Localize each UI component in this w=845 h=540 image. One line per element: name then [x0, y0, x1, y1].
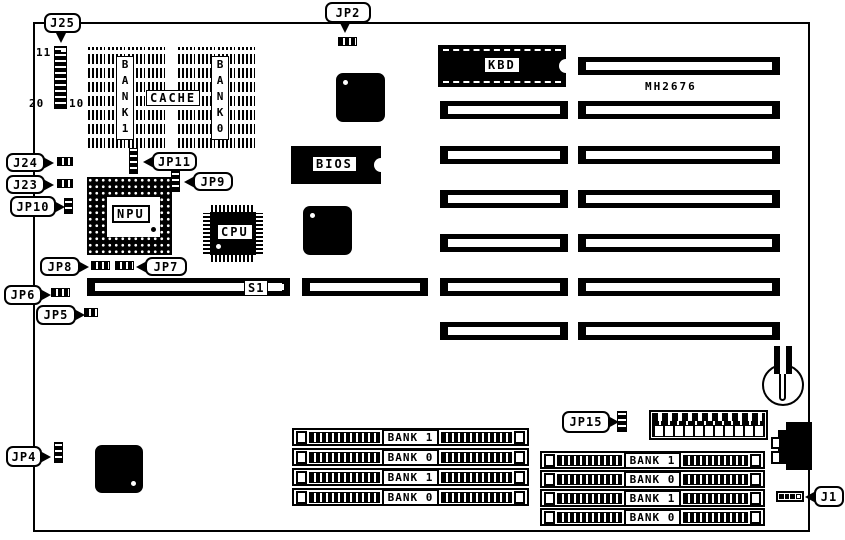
plcc-chip-top-pin1-dot	[343, 80, 348, 85]
cpu-text: CPU	[221, 225, 249, 239]
expansion-slot	[578, 322, 780, 340]
simm-clip	[296, 471, 307, 484]
jumper-label-j23: J23	[6, 175, 45, 194]
simm-chips	[557, 455, 622, 466]
j1-pin	[779, 494, 784, 499]
s1-text: S1	[248, 281, 264, 295]
expansion-slot	[440, 146, 568, 164]
simm-clip	[750, 511, 761, 524]
jumper-label-jp9: JP9	[193, 172, 233, 191]
npu-pin1-dot	[151, 227, 156, 232]
simm-bank-label: BANK 0	[624, 471, 682, 488]
simm-chips	[309, 432, 380, 443]
simm-clip	[544, 473, 555, 486]
cpu-pins-left	[203, 213, 210, 254]
kbd-label: KBD	[484, 57, 520, 73]
simm-socket: BANK 0	[540, 508, 765, 526]
cpu-label: CPU	[217, 224, 253, 240]
cache-bank1-text: BANK1	[119, 58, 132, 138]
jumper-label-jp2-text: JP2	[336, 6, 361, 20]
simm-chips	[557, 493, 622, 504]
jumper-j23	[57, 179, 73, 188]
kbd-text: KBD	[488, 58, 516, 72]
simm-clip	[296, 451, 307, 464]
jumper-label-jp15-text: JP15	[570, 415, 603, 429]
npu-label: NPU	[112, 205, 150, 223]
jumper-label-j25-text: J25	[50, 16, 75, 30]
cache-bank0-label: BANK0	[211, 56, 229, 140]
simm-socket: BANK 1	[292, 428, 529, 446]
plcc-chip-bottom-pin1-dot	[131, 481, 136, 486]
j1-pin	[790, 494, 795, 499]
expansion-slot	[578, 278, 780, 296]
jumper-label-j24-text: J24	[13, 156, 38, 170]
simm-chips	[441, 432, 512, 443]
j1-pin-open	[796, 494, 801, 499]
simm-bank-label: BANK 1	[624, 490, 682, 507]
simm-chips	[309, 492, 380, 503]
simm-bank-label: BANK 1	[382, 469, 440, 486]
jumper-label-jp10: JP10	[10, 196, 56, 217]
jumper-label-j23-text: J23	[13, 178, 38, 192]
jumper-label-jp4-text: JP4	[12, 450, 37, 464]
jumper-label-jp2: JP2	[325, 2, 371, 23]
pin-number-20: 20	[29, 97, 44, 110]
keyboard-din-pin-socket	[771, 437, 781, 449]
power-connector-pins	[652, 413, 765, 421]
plcc-chip-middle	[303, 206, 352, 255]
cache-bank1-label: BANK1	[116, 56, 134, 140]
jumper-label-jp7: JP7	[145, 257, 187, 276]
simm-clip	[514, 491, 525, 504]
jumper-jp11	[129, 148, 138, 174]
simm-clip	[750, 492, 761, 505]
simm-chips	[683, 493, 748, 504]
simm-chips	[683, 512, 748, 523]
keyboard-din-pin-socket	[771, 451, 781, 464]
motherboard-diagram: J25 11 20 10 BANK1 BANK0 CACHE JP2 KBD M…	[0, 0, 845, 540]
cpu-pins-bottom	[211, 255, 255, 262]
jumper-jp4	[54, 442, 63, 463]
battery-terminal-stem	[779, 374, 786, 401]
expansion-slot	[440, 234, 568, 252]
simm-clip	[544, 454, 555, 467]
expansion-slot	[578, 146, 780, 164]
cpu-body: CPU	[210, 212, 256, 255]
expansion-slot	[440, 101, 568, 119]
jumper-j24	[57, 157, 73, 166]
jumper-jp9	[171, 171, 180, 192]
cpu-pins-right	[256, 213, 263, 254]
expansion-slot	[578, 234, 780, 252]
simm-clip	[750, 454, 761, 467]
s1-end-mark	[274, 284, 284, 290]
cache-bank0-text: BANK0	[214, 58, 227, 138]
cache-text: CACHE	[150, 91, 196, 105]
simm-clip	[296, 491, 307, 504]
simm-chips	[309, 472, 380, 483]
simm-chips	[557, 474, 622, 485]
simm-socket: BANK 0	[292, 488, 529, 506]
simm-socket: BANK 0	[292, 448, 529, 466]
jumper-label-jp8-text: JP8	[48, 260, 73, 274]
bios-text: BIOS	[316, 157, 353, 171]
jumper-label-jp6: JP6	[4, 285, 42, 305]
jumper-label-jp8: JP8	[40, 257, 80, 276]
simm-socket: BANK 1	[540, 489, 765, 507]
simm-socket: BANK 1	[292, 468, 529, 486]
expansion-slot	[578, 57, 780, 75]
simm-bank-label: BANK 0	[382, 489, 440, 506]
pin-number-11: 11	[36, 46, 51, 59]
npu-text: NPU	[117, 207, 145, 221]
simm-chips	[441, 472, 512, 483]
jumper-label-jp11-text: JP11	[158, 155, 191, 169]
simm-clip	[544, 511, 555, 524]
simm-bank-label: BANK 0	[382, 449, 440, 466]
expansion-slot	[440, 278, 568, 296]
jumper-label-j1-text: J1	[821, 490, 837, 504]
jumper-label-jp5: JP5	[36, 305, 76, 325]
jumper-label-jp7-text: JP7	[154, 260, 179, 274]
simm-clip	[750, 473, 761, 486]
simm-chips	[683, 474, 748, 485]
simm-bank-label: BANK 1	[382, 429, 440, 446]
simm-chips	[441, 492, 512, 503]
jumper-label-jp5-text: JP5	[44, 308, 69, 322]
jumper-jp6	[51, 288, 70, 297]
jumper-label-jp15: JP15	[562, 411, 610, 433]
simm-clip	[514, 451, 525, 464]
expansion-slot	[302, 278, 428, 296]
connector-j1	[776, 491, 804, 502]
jumper-label-jp9-text: JP9	[201, 175, 226, 189]
expansion-slot	[578, 101, 780, 119]
s1-label: S1	[244, 280, 268, 296]
simm-chips	[309, 452, 380, 463]
pin-header-j25-pin1-marker	[61, 48, 66, 52]
plcc-chip-middle-pin1-dot	[310, 213, 315, 218]
jumper-jp10	[64, 198, 73, 214]
plcc-chip-top	[336, 73, 385, 122]
jumper-label-jp4: JP4	[6, 446, 42, 467]
simm-socket: BANK 0	[540, 470, 765, 488]
cpu-chip: CPU	[203, 205, 263, 262]
power-connector-sockets	[652, 425, 765, 437]
simm-clip	[514, 431, 525, 444]
expansion-slot	[440, 190, 568, 208]
simm-chips	[557, 512, 622, 523]
plcc-chip-bottom	[95, 445, 143, 493]
simm-clip	[296, 431, 307, 444]
jumper-jp7	[115, 261, 134, 270]
bios-chip-notch	[374, 158, 381, 172]
jumper-jp2	[338, 37, 357, 46]
mh2676-label: MH2676	[645, 80, 697, 93]
npu-socket-center: NPU	[107, 197, 160, 237]
simm-clip	[514, 471, 525, 484]
simm-bank-label: BANK 0	[624, 509, 682, 526]
j1-pin	[785, 494, 790, 499]
jumper-jp8	[91, 261, 110, 270]
jumper-label-jp11: JP11	[152, 152, 197, 171]
expansion-slot	[578, 190, 780, 208]
simm-chips	[441, 452, 512, 463]
simm-bank-label: BANK 1	[624, 452, 682, 469]
cache-label: CACHE	[146, 90, 200, 106]
cpu-pins-top	[211, 205, 255, 212]
jumper-label-j24: J24	[6, 153, 45, 172]
jumper-label-jp6-text: JP6	[11, 288, 36, 302]
jumper-jp5	[84, 308, 98, 317]
pin-header-j25	[54, 46, 67, 109]
simm-socket: BANK 1	[540, 451, 765, 469]
jumper-label-j25: J25	[44, 13, 81, 33]
cpu-pin1-dot	[216, 244, 221, 249]
expansion-slot	[440, 322, 568, 340]
keyboard-din-connector	[786, 422, 812, 470]
pin-number-10: 10	[69, 97, 84, 110]
battery-terminal-cap	[774, 346, 792, 374]
simm-clip	[544, 492, 555, 505]
kbd-chip-notch	[559, 59, 566, 73]
jumper-label-j1: J1	[814, 486, 844, 507]
power-connector	[649, 410, 768, 440]
npu-socket: NPU	[87, 177, 172, 255]
jumper-label-jp10-text: JP10	[17, 200, 50, 214]
simm-chips	[683, 455, 748, 466]
bios-label: BIOS	[312, 156, 357, 172]
